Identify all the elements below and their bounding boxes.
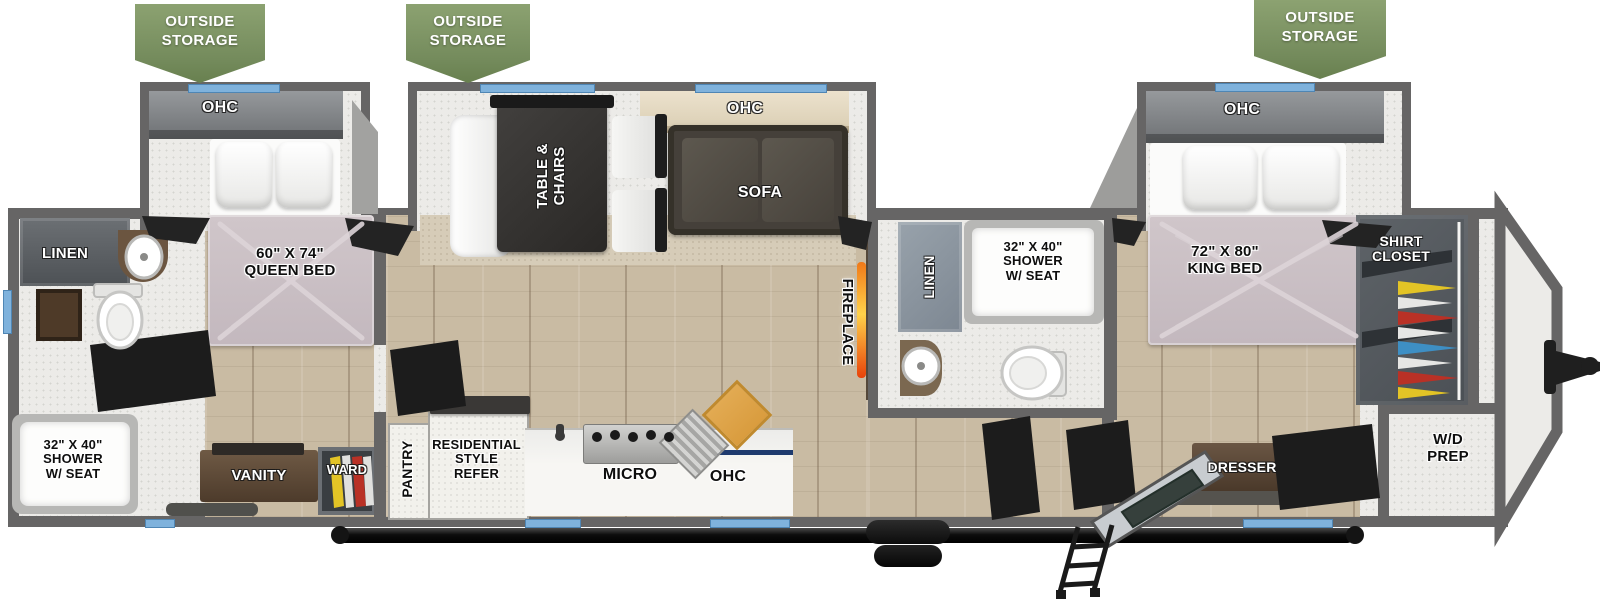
queen-bed-label: 60" X 74" QUEEN BED (215, 246, 365, 279)
hallway-floor (868, 415, 1102, 517)
shirt-closet-label: SHIRT CLOSET (1356, 234, 1446, 265)
fireplace-flame (857, 262, 866, 378)
wall-rear-kitchen-upper (374, 215, 386, 345)
window-rear-wall (3, 290, 12, 334)
queen-mattress (208, 215, 374, 346)
rear-mirror (36, 289, 82, 341)
living-ohc-label: OHC (715, 100, 775, 118)
vanity-label: VANITY (202, 468, 316, 485)
refrigerator-counter (430, 396, 530, 414)
outside-storage-banner-mid: OUTSIDE STORAGE (406, 4, 530, 83)
rear-shower-label: 32" X 40" SHOWER W/ SEAT (22, 438, 124, 481)
dresser-label: DRESSER (1192, 460, 1292, 475)
dinette-table-top-edge (490, 95, 614, 108)
wall-wd-left (1378, 403, 1389, 524)
king-pillow-left (1183, 146, 1257, 210)
king-bed-label: 72" X 80" KING BED (1150, 244, 1300, 277)
bedroom-bench (1153, 491, 1313, 505)
dinette-chair-1-arm (655, 114, 667, 178)
rear-linen-label: LINEN (30, 246, 100, 263)
sofa-cushion-left (682, 138, 758, 222)
awning-rail (337, 528, 1355, 543)
vanity-counter-items (212, 443, 304, 455)
sofa-label: SOFA (700, 184, 820, 202)
queen-ohc-label: OHC (190, 99, 250, 117)
queen-pillow-left (216, 142, 272, 208)
mid-shower-label: 32" X 40" SHOWER W/ SEAT (978, 240, 1088, 283)
fireplace-label: FIREPLACE (839, 237, 855, 407)
dinette-table-label: TABLE & CHAIRS (535, 116, 569, 236)
wardrobe-label: WARD (318, 463, 376, 477)
entry-step-lower (874, 545, 942, 567)
sofa-cushion-right (762, 138, 834, 222)
window-bottom-rear (145, 519, 175, 528)
entry-step-upper (866, 520, 950, 544)
window-bottom-kitchen (710, 519, 790, 528)
window-queen-slide (188, 84, 280, 93)
window-living-slide-left (480, 84, 595, 93)
wall-closet-front (1468, 212, 1479, 412)
wardrobe-cabinet (318, 447, 376, 515)
king-ohc-label: OHC (1212, 101, 1272, 119)
awning-rail-cap-right (1346, 526, 1364, 544)
wall-hall-lower (1102, 408, 1114, 524)
outside-storage-banner-front: OUTSIDE STORAGE (1254, 0, 1386, 79)
window-king-slide (1215, 83, 1315, 92)
rear-bench (166, 503, 258, 516)
pantry-label: PANTRY (400, 426, 416, 512)
wd-prep-label: W/D PREP (1398, 432, 1498, 465)
mid-linen-label: LINEN (922, 232, 938, 322)
refrigerator-label: RESIDENTIAL STYLE REFER (430, 438, 523, 481)
window-bottom-bedroom (1243, 519, 1333, 528)
micro-label: MICRO (585, 466, 675, 484)
king-pillow-right (1263, 146, 1339, 210)
kitchen-ohc-label: OHC (693, 468, 763, 486)
window-living-slide-right (695, 84, 827, 93)
window-bottom-bath (525, 519, 581, 528)
king-mattress (1148, 215, 1370, 345)
awning-rail-cap-left (331, 526, 349, 544)
hitch (1544, 340, 1600, 394)
rear-sink-counter (118, 230, 168, 282)
queen-pillow-right (276, 142, 332, 208)
front-nose (1500, 208, 1557, 527)
floorplan-scene: OUTSIDE STORAGE OUTSIDE STORAGE OUTSIDE … (0, 0, 1600, 600)
outside-storage-banner-rear: OUTSIDE STORAGE (135, 4, 265, 83)
mid-sink-counter (900, 340, 942, 396)
dinette-chair-2-arm (655, 188, 667, 252)
